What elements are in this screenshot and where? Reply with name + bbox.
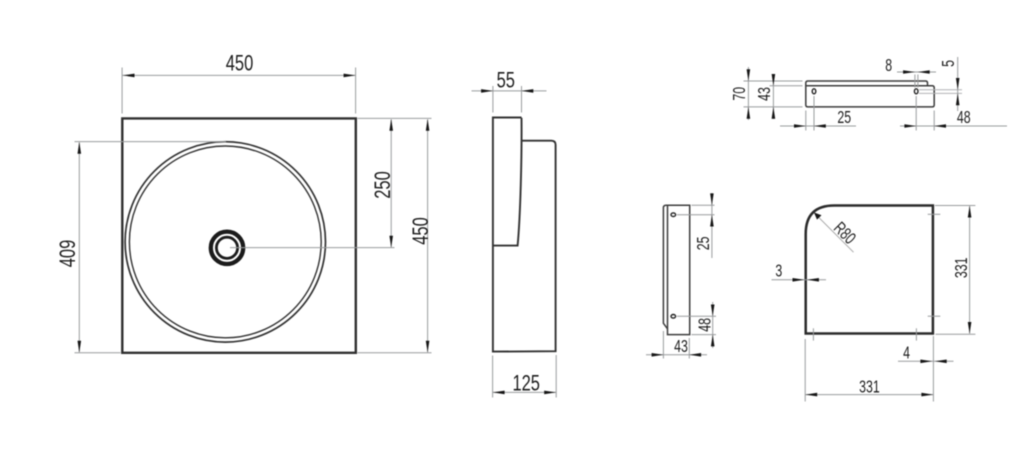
svg-text:331: 331 [952,257,972,278]
svg-text:4: 4 [903,344,910,364]
svg-text:450: 450 [409,217,434,245]
svg-text:5: 5 [939,60,959,67]
svg-text:70: 70 [730,87,750,101]
svg-text:8: 8 [885,56,892,76]
svg-text:48: 48 [695,318,715,332]
svg-text:25: 25 [694,237,714,251]
svg-text:125: 125 [512,371,540,396]
svg-text:450: 450 [226,51,254,76]
svg-text:409: 409 [56,240,81,268]
svg-text:43: 43 [674,337,688,357]
svg-text:55: 55 [497,68,515,93]
svg-text:331: 331 [859,377,880,397]
svg-text:48: 48 [957,108,971,128]
svg-text:3: 3 [775,262,782,282]
svg-text:43: 43 [755,87,775,101]
svg-text:25: 25 [837,108,851,128]
svg-text:250: 250 [371,171,396,199]
